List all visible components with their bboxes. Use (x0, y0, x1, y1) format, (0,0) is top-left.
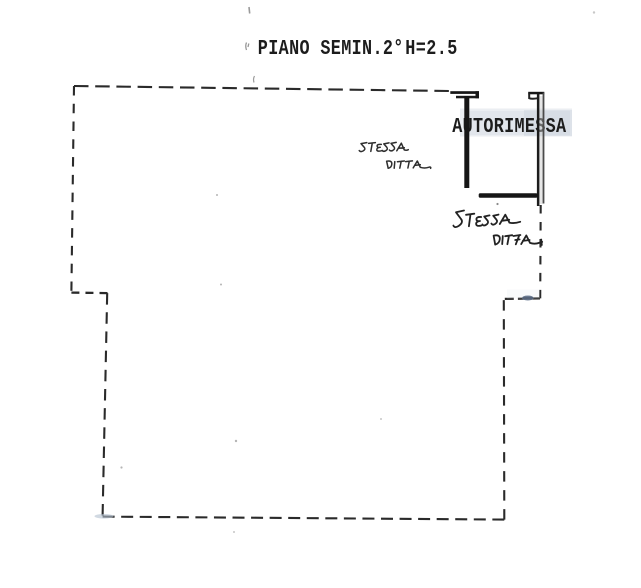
svg-text:AUTORIMESSA: AUTORIMESSA (452, 114, 566, 139)
svg-text:H=2.5: H=2.5 (405, 36, 458, 61)
svg-text:PIANO SEMIN.2°: PIANO SEMIN.2° (258, 36, 404, 61)
